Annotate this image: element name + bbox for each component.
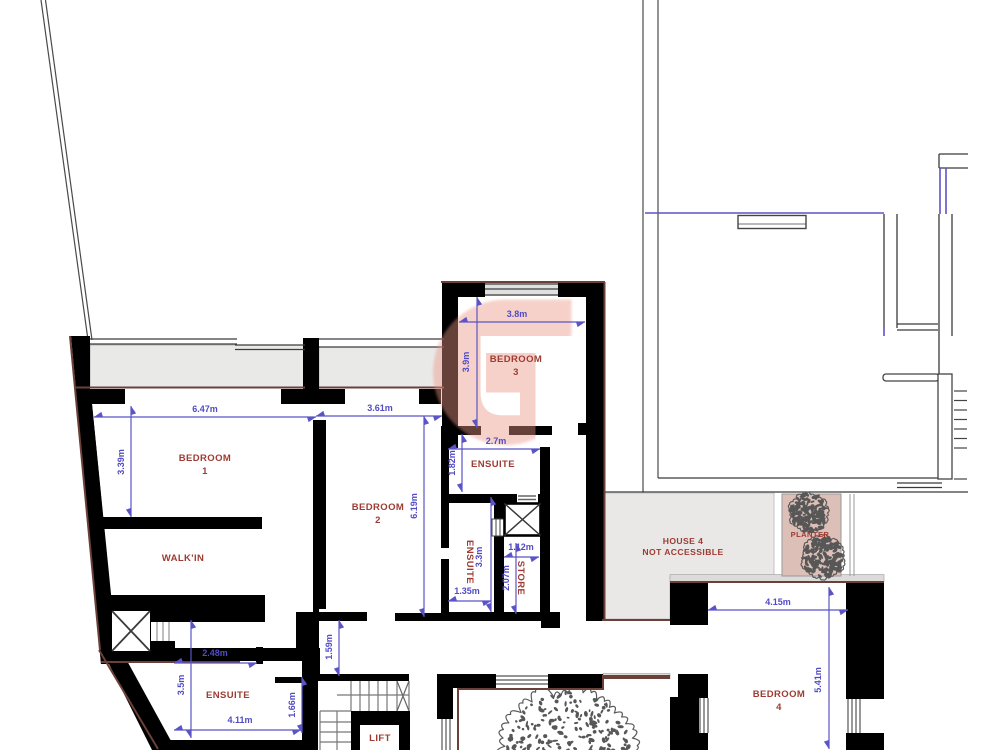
svg-text:BEDROOM: BEDROOM	[352, 502, 404, 513]
svg-text:1: 1	[202, 466, 208, 477]
svg-text:ENSUITE: ENSUITE	[206, 690, 250, 701]
svg-text:6.47m: 6.47m	[192, 404, 218, 414]
svg-text:1.66m: 1.66m	[287, 692, 297, 718]
svg-text:1.82m: 1.82m	[447, 450, 457, 476]
svg-text:5.41m: 5.41m	[813, 667, 823, 693]
svg-text:PLANTER: PLANTER	[791, 530, 830, 539]
svg-text:BEDROOM: BEDROOM	[753, 689, 805, 700]
svg-text:2: 2	[375, 515, 381, 526]
svg-text:3.8m: 3.8m	[507, 309, 528, 319]
svg-text:2.7m: 2.7m	[486, 436, 507, 446]
svg-text:ENSUITE: ENSUITE	[464, 540, 475, 584]
svg-text:ENSUITE: ENSUITE	[471, 459, 515, 470]
svg-text:WALK'IN: WALK'IN	[162, 553, 205, 564]
svg-text:1.59m: 1.59m	[324, 634, 334, 660]
svg-text:BEDROOM: BEDROOM	[490, 354, 542, 365]
svg-text:3: 3	[513, 367, 519, 378]
svg-text:3.39m: 3.39m	[116, 449, 126, 475]
svg-text:LIFT: LIFT	[369, 733, 391, 744]
svg-text:4.11m: 4.11m	[227, 715, 252, 725]
svg-text:3.61m: 3.61m	[367, 403, 393, 413]
svg-text:3.9m: 3.9m	[461, 352, 471, 373]
svg-text:2.48m: 2.48m	[202, 648, 228, 658]
svg-text:4.15m: 4.15m	[765, 597, 791, 607]
svg-text:1.12m: 1.12m	[508, 542, 534, 552]
svg-text:3.5m: 3.5m	[176, 675, 186, 696]
svg-text:6.19m: 6.19m	[409, 493, 419, 519]
svg-text:HOUSE 4: HOUSE 4	[663, 536, 704, 546]
svg-text:NOT ACCESSIBLE: NOT ACCESSIBLE	[642, 547, 723, 557]
svg-text:BEDROOM: BEDROOM	[179, 453, 231, 464]
svg-text:4: 4	[776, 702, 782, 713]
svg-text:STORE: STORE	[515, 561, 526, 596]
svg-text:2.07m: 2.07m	[501, 565, 511, 591]
svg-text:1.35m: 1.35m	[454, 586, 480, 596]
